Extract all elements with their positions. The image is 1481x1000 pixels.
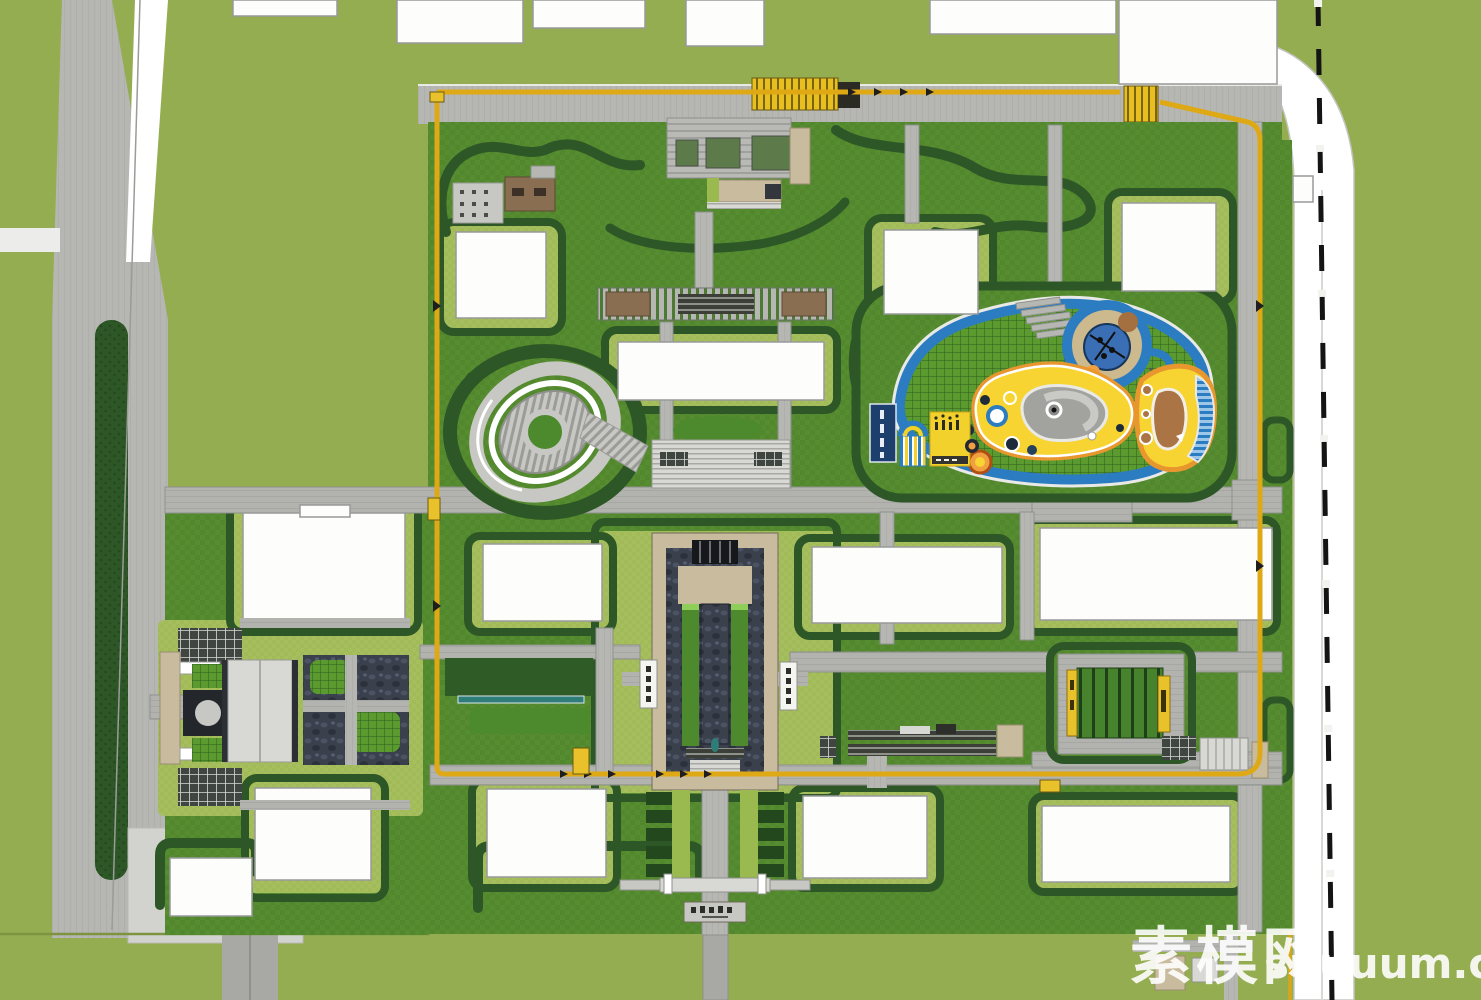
building-roof xyxy=(233,0,337,16)
court-trellis-east xyxy=(754,452,782,466)
clubhouse-lawn-strip xyxy=(707,178,719,203)
axis-lawn-strip-east xyxy=(740,790,758,878)
west-road-tree-median xyxy=(95,320,128,880)
stone-garden-mat xyxy=(310,660,350,694)
courtyard-plaque-west xyxy=(640,660,657,708)
courtyard-sculpture xyxy=(711,738,719,752)
building-roof xyxy=(397,0,523,43)
building-roof xyxy=(812,547,1002,623)
building-roof xyxy=(456,232,546,318)
west-gate-post xyxy=(292,660,298,762)
building-roof xyxy=(483,544,602,621)
playground-main-amoeba xyxy=(962,366,1132,456)
vertical-connector-1 xyxy=(596,628,613,774)
site-plan-canvas: 素模网 suuuum.com xyxy=(0,0,1481,1000)
gate-post xyxy=(758,874,766,894)
playground-swirl xyxy=(969,451,991,473)
west-grid-lawn xyxy=(192,738,222,762)
building-roof xyxy=(803,796,927,878)
water-channel xyxy=(458,696,584,703)
courtyard-pergola xyxy=(692,540,738,564)
building-roof xyxy=(930,0,1116,34)
west-complex-path-north xyxy=(240,618,410,628)
building-roof xyxy=(487,789,606,877)
axis-lawn-strip-west xyxy=(672,790,690,878)
west-road-crossing xyxy=(0,228,60,252)
courtyard-planting-east xyxy=(731,610,748,746)
clubhouse-terrace xyxy=(790,128,810,184)
south-trellis-block xyxy=(820,736,836,758)
stone-garden-path-v xyxy=(345,655,357,765)
building-roof xyxy=(686,0,764,46)
west-grid-lawn xyxy=(192,664,222,688)
track-marker-sign xyxy=(430,92,444,102)
track-marker-sign xyxy=(1040,780,1060,792)
pergola-white-bit xyxy=(900,726,930,734)
building-roof-wing xyxy=(300,505,350,517)
clubhouse-skylight xyxy=(706,138,740,168)
sand-dot xyxy=(1140,432,1152,444)
stripe-wall xyxy=(900,436,926,466)
pergola-end-west xyxy=(606,292,650,316)
project-name-plaque xyxy=(684,902,746,922)
courtyard-planting-cap-east xyxy=(731,604,748,610)
site-plan-drawing: 素模网 suuuum.com xyxy=(0,0,1481,1000)
west-tan-building xyxy=(160,652,180,764)
play-equipment-dot xyxy=(1101,353,1107,359)
east-trellis-block xyxy=(1162,736,1196,760)
gate-beam xyxy=(660,878,770,892)
pergola-center-detail xyxy=(678,294,754,314)
building-roof xyxy=(243,513,405,625)
sand-dot xyxy=(1142,385,1152,395)
hedge-ladder-west xyxy=(646,792,672,877)
pavilion-roof-detail xyxy=(534,188,546,196)
building-roof xyxy=(1042,806,1230,882)
pavilion-roof-detail xyxy=(512,188,524,196)
north-service-road xyxy=(418,78,1282,129)
spring-rider-seat xyxy=(969,443,976,450)
pergola-row xyxy=(848,744,996,756)
playground-sand-module xyxy=(1137,366,1215,469)
building-roof xyxy=(1122,203,1216,291)
axis-upper-path xyxy=(695,212,713,290)
sand-dot xyxy=(1142,410,1150,418)
event-lawn-court xyxy=(1077,668,1163,738)
pergola-dark-block xyxy=(936,724,956,734)
west-gate-post xyxy=(222,660,228,762)
pavilion-small-roof xyxy=(531,166,555,178)
gate-wing-east xyxy=(770,880,810,890)
north-yellow-kiosk xyxy=(1124,86,1158,122)
stone-garden-mat xyxy=(352,712,400,752)
pergola-end-east xyxy=(782,292,826,316)
west-trellis-south xyxy=(178,768,242,806)
clubhouse-patio-stone xyxy=(765,184,781,199)
building-roof xyxy=(1040,528,1272,620)
west-court-circle xyxy=(195,700,221,726)
building-roof xyxy=(884,230,978,314)
south-exit-path xyxy=(703,935,728,1000)
courtyard-planting-cap-west xyxy=(682,604,699,610)
north-connector-path xyxy=(905,125,919,223)
south-tan-building xyxy=(997,725,1023,757)
building-roof xyxy=(170,858,252,916)
gate-post xyxy=(664,874,672,894)
children-playground xyxy=(856,286,1232,498)
track-marker-sign xyxy=(428,498,440,520)
central-pergola-row xyxy=(598,288,834,320)
courtyard-terrace xyxy=(678,566,752,604)
dark-lawn-panel xyxy=(445,658,593,696)
clubhouse-skylight xyxy=(676,140,698,166)
building-roof xyxy=(618,342,824,400)
hedge-ladder-east xyxy=(758,792,784,877)
sand-patch xyxy=(1118,312,1138,332)
watermark-en: suuuum.com xyxy=(1264,939,1481,988)
track-marker-sign xyxy=(573,748,589,774)
playground-approach-path xyxy=(1048,125,1062,297)
gate-wing-west xyxy=(620,880,660,890)
courtyard-water-core xyxy=(701,604,729,744)
mid-lawn-panel xyxy=(470,708,590,734)
west-complex-path-south xyxy=(240,800,410,810)
courtyard-planting-west xyxy=(682,610,699,746)
court-trellis-west xyxy=(660,452,688,466)
spinner-center xyxy=(1052,408,1057,413)
building-roof xyxy=(533,0,645,28)
mid-horizontal-path xyxy=(790,652,1282,672)
vertical-connector-3 xyxy=(1020,512,1034,640)
spiral-center-lawn xyxy=(525,412,565,452)
courtyard-plaque-east xyxy=(780,662,797,710)
clubhouse-steps xyxy=(707,202,781,209)
banner-text-marks xyxy=(936,459,957,461)
clubhouse-skylight xyxy=(752,136,790,170)
building-roof xyxy=(1119,0,1277,84)
bus-stop-pad xyxy=(1293,176,1313,202)
